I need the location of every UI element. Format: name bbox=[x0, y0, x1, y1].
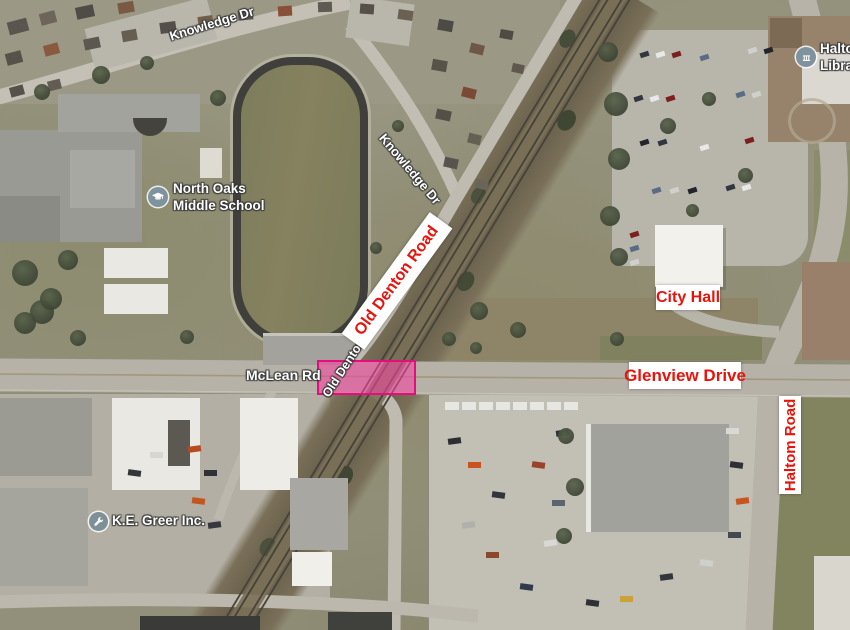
tree bbox=[470, 302, 488, 320]
car-marker bbox=[629, 245, 639, 253]
car-marker bbox=[639, 139, 649, 147]
truck-marker bbox=[700, 559, 714, 567]
house-roof bbox=[7, 18, 30, 36]
truck-marker bbox=[726, 428, 739, 434]
house-roof bbox=[443, 157, 459, 170]
tree bbox=[738, 168, 753, 183]
house-roof bbox=[318, 2, 332, 12]
tree bbox=[40, 288, 62, 310]
house-roof bbox=[437, 19, 454, 32]
house-roof bbox=[83, 36, 101, 50]
truck-marker bbox=[520, 583, 534, 591]
house-roof bbox=[278, 6, 293, 17]
truck-marker bbox=[448, 437, 462, 445]
map-canvas[interactable]: Knowledge Dr Knowledge Dr Old Denton Rd … bbox=[0, 0, 850, 630]
truck-marker bbox=[532, 461, 546, 469]
trailer-marker bbox=[564, 402, 578, 410]
tree bbox=[442, 332, 456, 346]
house-roof bbox=[43, 42, 60, 57]
car-marker bbox=[687, 187, 697, 195]
school-label: North Oaks Middle School bbox=[173, 180, 265, 214]
house-roof bbox=[397, 9, 413, 21]
tree bbox=[210, 90, 226, 106]
tree bbox=[610, 332, 624, 346]
truck-marker bbox=[188, 445, 202, 453]
truck-marker bbox=[492, 491, 506, 499]
tree bbox=[608, 148, 630, 170]
car-marker bbox=[629, 259, 639, 267]
car-marker bbox=[639, 51, 649, 59]
tree bbox=[558, 428, 574, 444]
car-marker bbox=[633, 95, 643, 103]
car-marker bbox=[725, 184, 735, 192]
trailer-marker bbox=[547, 402, 561, 410]
house-roof bbox=[39, 10, 58, 26]
car-marker bbox=[669, 187, 679, 195]
truck-marker bbox=[544, 539, 558, 547]
truck-marker bbox=[660, 573, 674, 581]
truck-marker bbox=[208, 521, 222, 529]
truck-marker bbox=[204, 470, 217, 476]
tree bbox=[610, 248, 628, 266]
tree bbox=[566, 478, 584, 496]
tree bbox=[660, 118, 676, 134]
truck-marker bbox=[728, 532, 741, 538]
tree bbox=[180, 330, 194, 344]
truck-marker bbox=[486, 552, 499, 558]
library-icon bbox=[796, 47, 816, 67]
tree bbox=[686, 204, 699, 217]
graduation-cap-icon bbox=[148, 187, 168, 207]
trailer-marker bbox=[530, 402, 544, 410]
school-label-line2: Middle School bbox=[173, 197, 265, 214]
car-marker bbox=[741, 184, 751, 192]
trailer-marker bbox=[496, 402, 510, 410]
tree bbox=[510, 322, 526, 338]
tree bbox=[92, 66, 110, 84]
annotation-haltom-road: Haltom Road bbox=[779, 396, 801, 494]
house-roof bbox=[431, 59, 448, 72]
truck-marker bbox=[128, 469, 142, 477]
truck-marker bbox=[150, 452, 163, 458]
car-marker bbox=[671, 51, 681, 59]
trailer-marker bbox=[445, 402, 459, 410]
library-label-line1: Haltom bbox=[820, 40, 850, 57]
car-marker bbox=[655, 51, 665, 59]
tree bbox=[58, 250, 78, 270]
house-roof bbox=[474, 179, 489, 191]
house-roof bbox=[435, 109, 452, 122]
street-label-mclean-rd: McLean Rd bbox=[246, 367, 321, 383]
car-marker bbox=[735, 91, 745, 99]
car-marker bbox=[665, 95, 675, 103]
house-roof bbox=[469, 42, 485, 55]
house-roof bbox=[461, 86, 477, 99]
truck-marker bbox=[552, 500, 565, 506]
house-roof bbox=[511, 63, 525, 74]
house-roof bbox=[360, 4, 375, 15]
car-marker bbox=[651, 187, 661, 195]
tree bbox=[12, 260, 38, 286]
tree bbox=[370, 242, 382, 254]
car-marker bbox=[744, 137, 754, 145]
tree bbox=[604, 92, 628, 116]
house-roof bbox=[75, 4, 95, 19]
car-marker bbox=[629, 231, 639, 239]
car-marker bbox=[751, 91, 761, 99]
house-roof bbox=[499, 29, 513, 40]
tree bbox=[470, 342, 482, 354]
tree bbox=[600, 206, 620, 226]
truck-marker bbox=[730, 461, 744, 469]
tree bbox=[140, 56, 154, 70]
tree bbox=[598, 42, 618, 62]
trailer-marker bbox=[462, 402, 476, 410]
truck-marker bbox=[462, 521, 476, 529]
car-marker bbox=[657, 139, 667, 147]
tree bbox=[702, 92, 716, 106]
business-label: K.E. Greer Inc. bbox=[112, 513, 205, 528]
car-marker bbox=[747, 47, 757, 55]
map-decorations bbox=[0, 0, 850, 630]
library-label-line2: Library bbox=[820, 57, 850, 74]
tree bbox=[392, 120, 404, 132]
tree bbox=[556, 528, 572, 544]
tree bbox=[70, 330, 86, 346]
truck-marker bbox=[736, 497, 750, 505]
school-label-line1: North Oaks bbox=[173, 180, 265, 197]
car-marker bbox=[649, 95, 659, 103]
tree bbox=[34, 84, 50, 100]
tree bbox=[14, 312, 36, 334]
annotation-city-hall: City Hall bbox=[656, 285, 720, 310]
car-marker bbox=[763, 47, 773, 55]
truck-marker bbox=[468, 462, 481, 468]
trailer-marker bbox=[479, 402, 493, 410]
library-label: Haltom Library bbox=[820, 40, 850, 74]
house-roof bbox=[5, 50, 24, 66]
car-marker bbox=[699, 144, 709, 152]
trailer-marker bbox=[513, 402, 527, 410]
truck-marker bbox=[620, 596, 633, 602]
annotation-glenview-drive: Glenview Drive bbox=[629, 362, 741, 389]
house-roof bbox=[467, 133, 482, 146]
truck-marker bbox=[586, 599, 600, 607]
wrench-icon bbox=[89, 512, 108, 531]
house-roof bbox=[121, 29, 138, 42]
house-roof bbox=[117, 1, 135, 15]
car-marker bbox=[699, 54, 709, 62]
truck-marker bbox=[192, 497, 206, 505]
house-roof bbox=[9, 84, 25, 97]
